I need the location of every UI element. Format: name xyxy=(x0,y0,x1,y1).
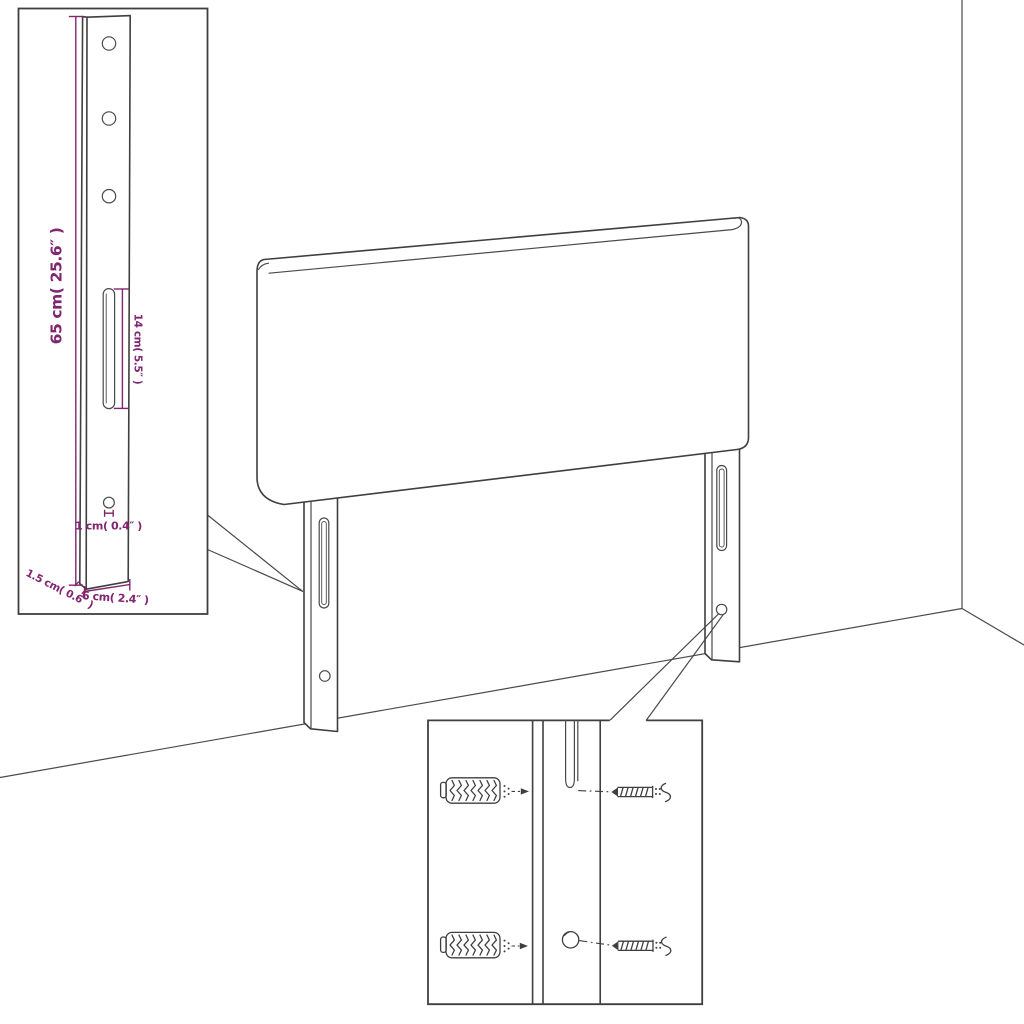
right-leg xyxy=(705,420,740,662)
floor-line-right xyxy=(962,609,1024,646)
callout-leader-line xyxy=(208,550,303,592)
hardware-detail-callout xyxy=(428,614,723,1004)
headboard-panel xyxy=(257,218,749,505)
assembly-diagram-page: 65 cm( 25.6″ ) 14 cm( 5.5″ ) 1 cm( 0.4″ … xyxy=(0,0,1024,1024)
right-leg-body xyxy=(705,420,740,662)
callout-leader-line xyxy=(208,515,303,591)
bracket-front-face xyxy=(86,16,130,590)
headboard xyxy=(257,218,749,505)
callout-leader-line xyxy=(646,615,723,720)
hole-diameter-label: 1 cm( 0.4″ ) xyxy=(75,520,142,533)
slot-length-label: 14 cm( 5.5″ ) xyxy=(132,314,144,384)
bracket-height-label: 65 cm( 25.6″ ) xyxy=(48,228,66,345)
assembly-diagram: 65 cm( 25.6″ ) 14 cm( 5.5″ ) 1 cm( 0.4″ … xyxy=(0,0,1024,1024)
